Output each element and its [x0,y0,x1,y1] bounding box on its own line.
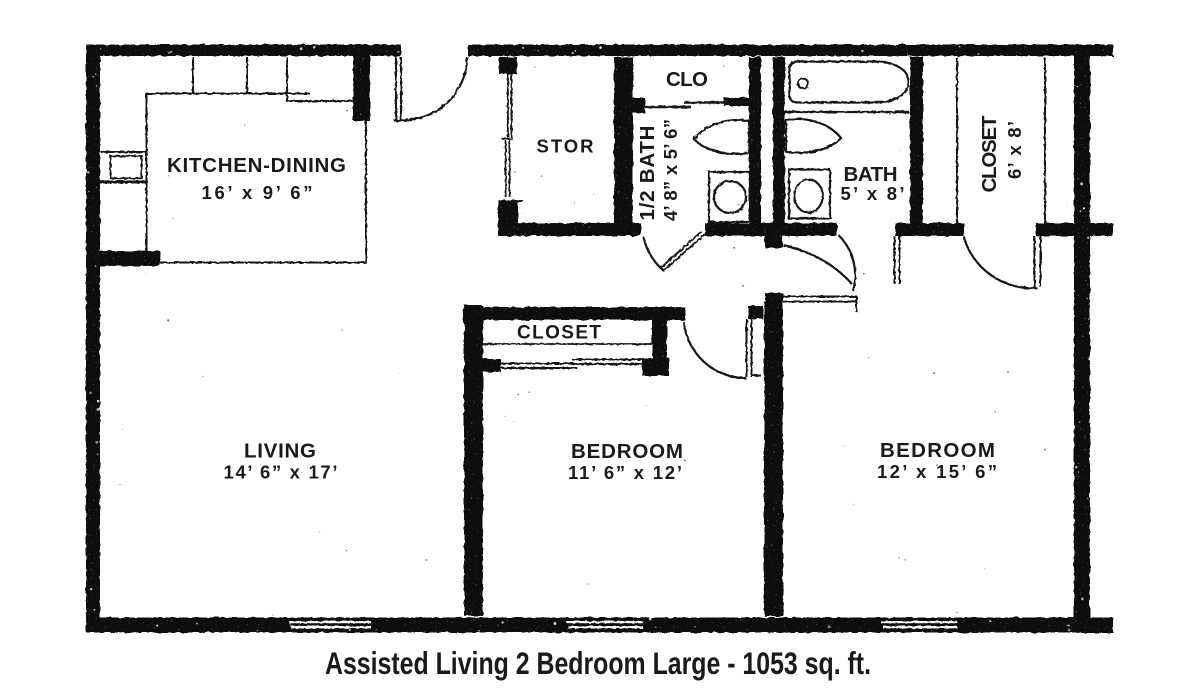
svg-text:LIVING: LIVING [244,440,316,463]
svg-text:BEDROOM: BEDROOM [571,440,683,463]
svg-text:5’ x 8’: 5’ x 8’ [841,183,905,204]
svg-text:16’ x 9’ 6”: 16’ x 9’ 6” [202,182,313,203]
svg-text:12’ x 15’ 6”: 12’ x 15’ 6” [877,461,997,482]
svg-text:6’ x 8’: 6’ x 8’ [1004,121,1025,179]
svg-text:KITCHEN-DINING: KITCHEN-DINING [167,154,346,177]
svg-text:CLOSET: CLOSET [517,323,601,344]
svg-text:CLO: CLO [666,68,708,91]
svg-text:CLOSET: CLOSET [978,115,1001,192]
svg-text:BEDROOM: BEDROOM [880,439,995,462]
svg-text:4’ 8” x 5’ 6”: 4’ 8” x 5’ 6” [660,119,681,221]
svg-text:1/2 BATH: 1/2 BATH [636,126,659,221]
svg-text:14’ 6” x 17’: 14’ 6” x 17’ [224,462,338,483]
svg-text:STOR: STOR [537,136,594,157]
svg-text:Assisted Living 2 Bedroom Larg: Assisted Living 2 Bedroom Large - 1053 s… [325,645,871,681]
svg-text:11’ 6” x 12’: 11’ 6” x 12’ [568,462,682,483]
